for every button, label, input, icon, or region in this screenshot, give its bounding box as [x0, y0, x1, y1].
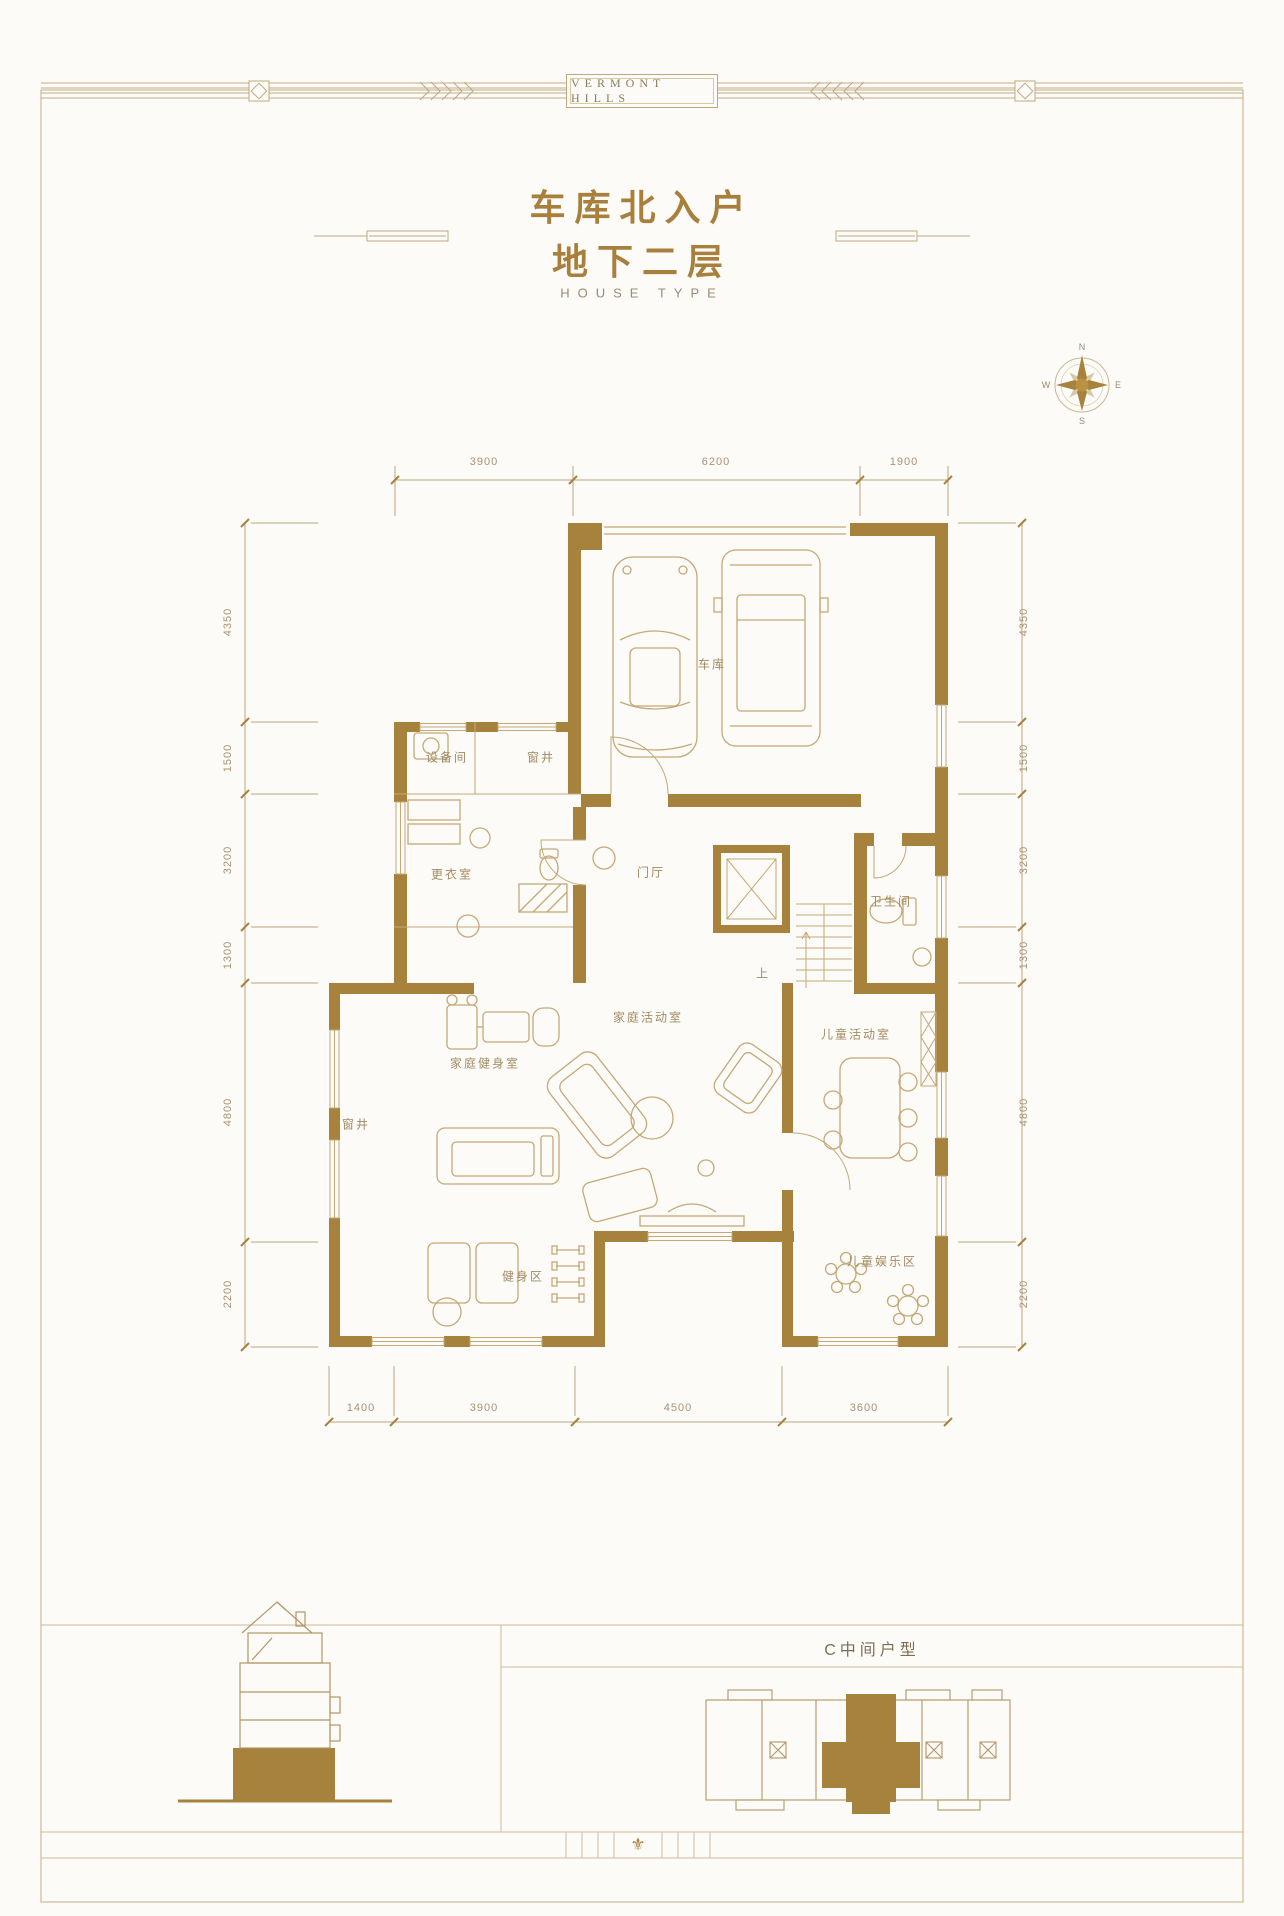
dim-right-4350: 4350: [1018, 608, 1030, 636]
room-label-garage: 车库: [698, 656, 726, 673]
dim-left-1300: 1300: [222, 941, 234, 969]
room-label-children-activity-room: 儿童活动室: [821, 1026, 891, 1043]
floor-plan-page: { "brand": { "name": "VERMONT HILLS" }, …: [0, 0, 1284, 1916]
dim-right-4800: 4800: [1018, 1098, 1030, 1126]
room-label-family-activity-room: 家庭活动室: [613, 1009, 683, 1026]
dim-top-1900: 1900: [890, 456, 918, 468]
room-label-fitness-zone: 健身区: [502, 1268, 544, 1285]
dim-bottom-3900: 3900: [470, 1402, 498, 1414]
dim-bottom-4500: 4500: [664, 1402, 692, 1414]
key-plan-title: C中间户型: [824, 1636, 920, 1660]
room-label-foyer: 门厅: [637, 864, 665, 881]
dim-left-2200: 2200: [222, 1280, 234, 1308]
fleur-de-lis-icon: ⚜: [630, 1835, 645, 1855]
dim-right-2200: 2200: [1018, 1280, 1030, 1308]
dim-left-4350: 4350: [222, 608, 234, 636]
dim-bottom-1400: 1400: [347, 1402, 375, 1414]
room-label-equipment-room: 设备间: [426, 749, 468, 766]
room-label-dressing-room: 更衣室: [431, 866, 473, 883]
dim-left-4800: 4800: [222, 1098, 234, 1126]
room-label-stairs-up: 上: [756, 965, 770, 982]
room-label-children-play-zone: 儿童娱乐区: [847, 1253, 917, 1270]
plan-labels-layer: 车库设备间窗井更衣室门厅卫生间家庭活动室家庭健身室儿童活动室窗井健身区儿童娱乐区…: [0, 0, 1284, 1916]
dim-bottom-3600: 3600: [850, 1402, 878, 1414]
dim-right-1500: 1500: [1018, 744, 1030, 772]
room-label-window-well-left: 窗井: [342, 1116, 370, 1133]
dim-top-3900: 3900: [470, 456, 498, 468]
room-label-bathroom: 卫生间: [870, 893, 912, 910]
dim-right-3200: 3200: [1018, 846, 1030, 874]
dim-left-3200: 3200: [222, 846, 234, 874]
room-label-window-well-top: 窗井: [527, 749, 555, 766]
dim-top-6200: 6200: [702, 456, 730, 468]
dim-right-1300: 1300: [1018, 941, 1030, 969]
dim-left-1500: 1500: [222, 744, 234, 772]
room-label-family-gym: 家庭健身室: [450, 1055, 520, 1072]
